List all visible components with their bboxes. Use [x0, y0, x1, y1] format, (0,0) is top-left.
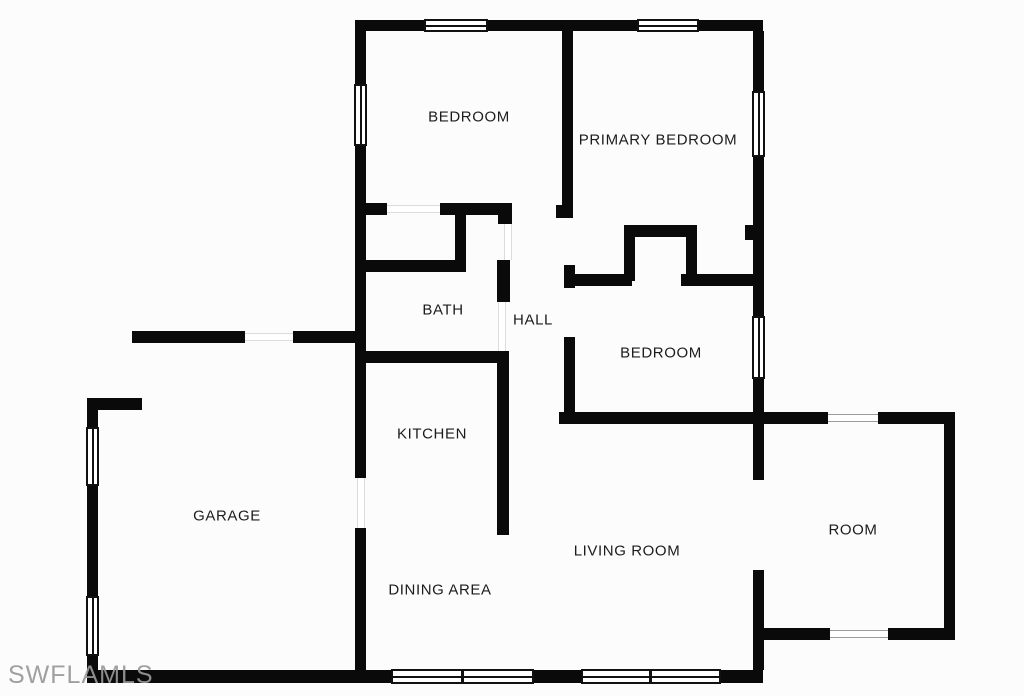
wall-exterior-right-4	[753, 570, 764, 670]
wall-hall-closet-stub	[498, 215, 512, 224]
wall-garage-top-right	[293, 331, 366, 343]
window-bedroom-top	[424, 19, 488, 32]
window-bedroom-left	[354, 84, 367, 146]
wall-kitchen-living-divider	[497, 363, 509, 535]
window-primary-top	[637, 19, 699, 32]
wall-room-right	[944, 424, 955, 640]
window-living-1	[581, 669, 651, 684]
room-label-hall: HALL	[513, 312, 553, 329]
wall-primary-closet-left	[624, 237, 635, 281]
wall-exterior-top	[355, 20, 763, 31]
window-living-2	[650, 669, 721, 684]
room-label-primary-bedroom: PRIMARY BEDROOM	[579, 132, 737, 149]
window-garage-left-1	[86, 427, 99, 486]
opening-garage-kitchen-door	[357, 478, 365, 528]
room-label-bath: BATH	[422, 302, 463, 319]
window-room-bottom	[830, 630, 888, 638]
window-primary-right	[752, 91, 765, 157]
room-label-garage: GARAGE	[193, 508, 261, 525]
wall-bedroom-closet-stub	[365, 203, 387, 215]
window-bedroom-right	[752, 316, 765, 379]
wall-room-top-right	[878, 412, 955, 424]
wall-primary-closet-right	[686, 237, 697, 281]
wall-bedroom-right-left	[564, 337, 575, 424]
room-label-bedroom-right: BEDROOM	[620, 345, 702, 362]
room-label-room: ROOM	[828, 522, 877, 539]
room-label-kitchen: KITCHEN	[397, 426, 467, 443]
wall-room-bottom-left	[763, 628, 830, 640]
floor-plan: BEDROOM PRIMARY BEDROOM BATH HALL BEDROO…	[0, 0, 1024, 696]
opening-garage-top	[245, 333, 293, 341]
wall-exterior-right-1	[753, 31, 764, 93]
opening-bath-door	[498, 302, 506, 351]
window-dining-1	[391, 669, 463, 684]
opening-bedroom-closet-door	[387, 205, 440, 213]
room-label-dining-area: DINING AREA	[388, 582, 491, 599]
wall-bedroom-closet-top	[440, 203, 512, 215]
window-dining-2	[462, 669, 534, 684]
wall-bedrooms-divider-foot	[556, 205, 573, 218]
wall-primary-closet-piece	[745, 225, 757, 240]
wall-garage-notch-top	[87, 398, 142, 410]
wall-garage-top-left	[132, 331, 245, 343]
window-garage-left-2	[86, 596, 99, 656]
room-label-bedroom-top: BEDROOM	[428, 109, 510, 126]
room-label-living-room: LIVING ROOM	[574, 543, 681, 560]
wall-primary-closet-top	[624, 225, 697, 237]
wall-exterior-right-3	[753, 379, 764, 480]
wall-bath-east	[497, 260, 510, 302]
window-room-top	[828, 414, 878, 422]
wall-kitchen-top	[365, 351, 509, 363]
wall-bedrooms-divider	[562, 31, 573, 205]
wall-room-bottom-right	[888, 628, 955, 640]
wall-bath-top	[365, 260, 466, 272]
wall-exterior-left-lower	[355, 528, 366, 670]
wall-bedroom-right-bottom	[559, 412, 828, 424]
opening-hall-closet-door	[504, 224, 512, 260]
watermark: SWFLAMLS	[8, 661, 154, 690]
